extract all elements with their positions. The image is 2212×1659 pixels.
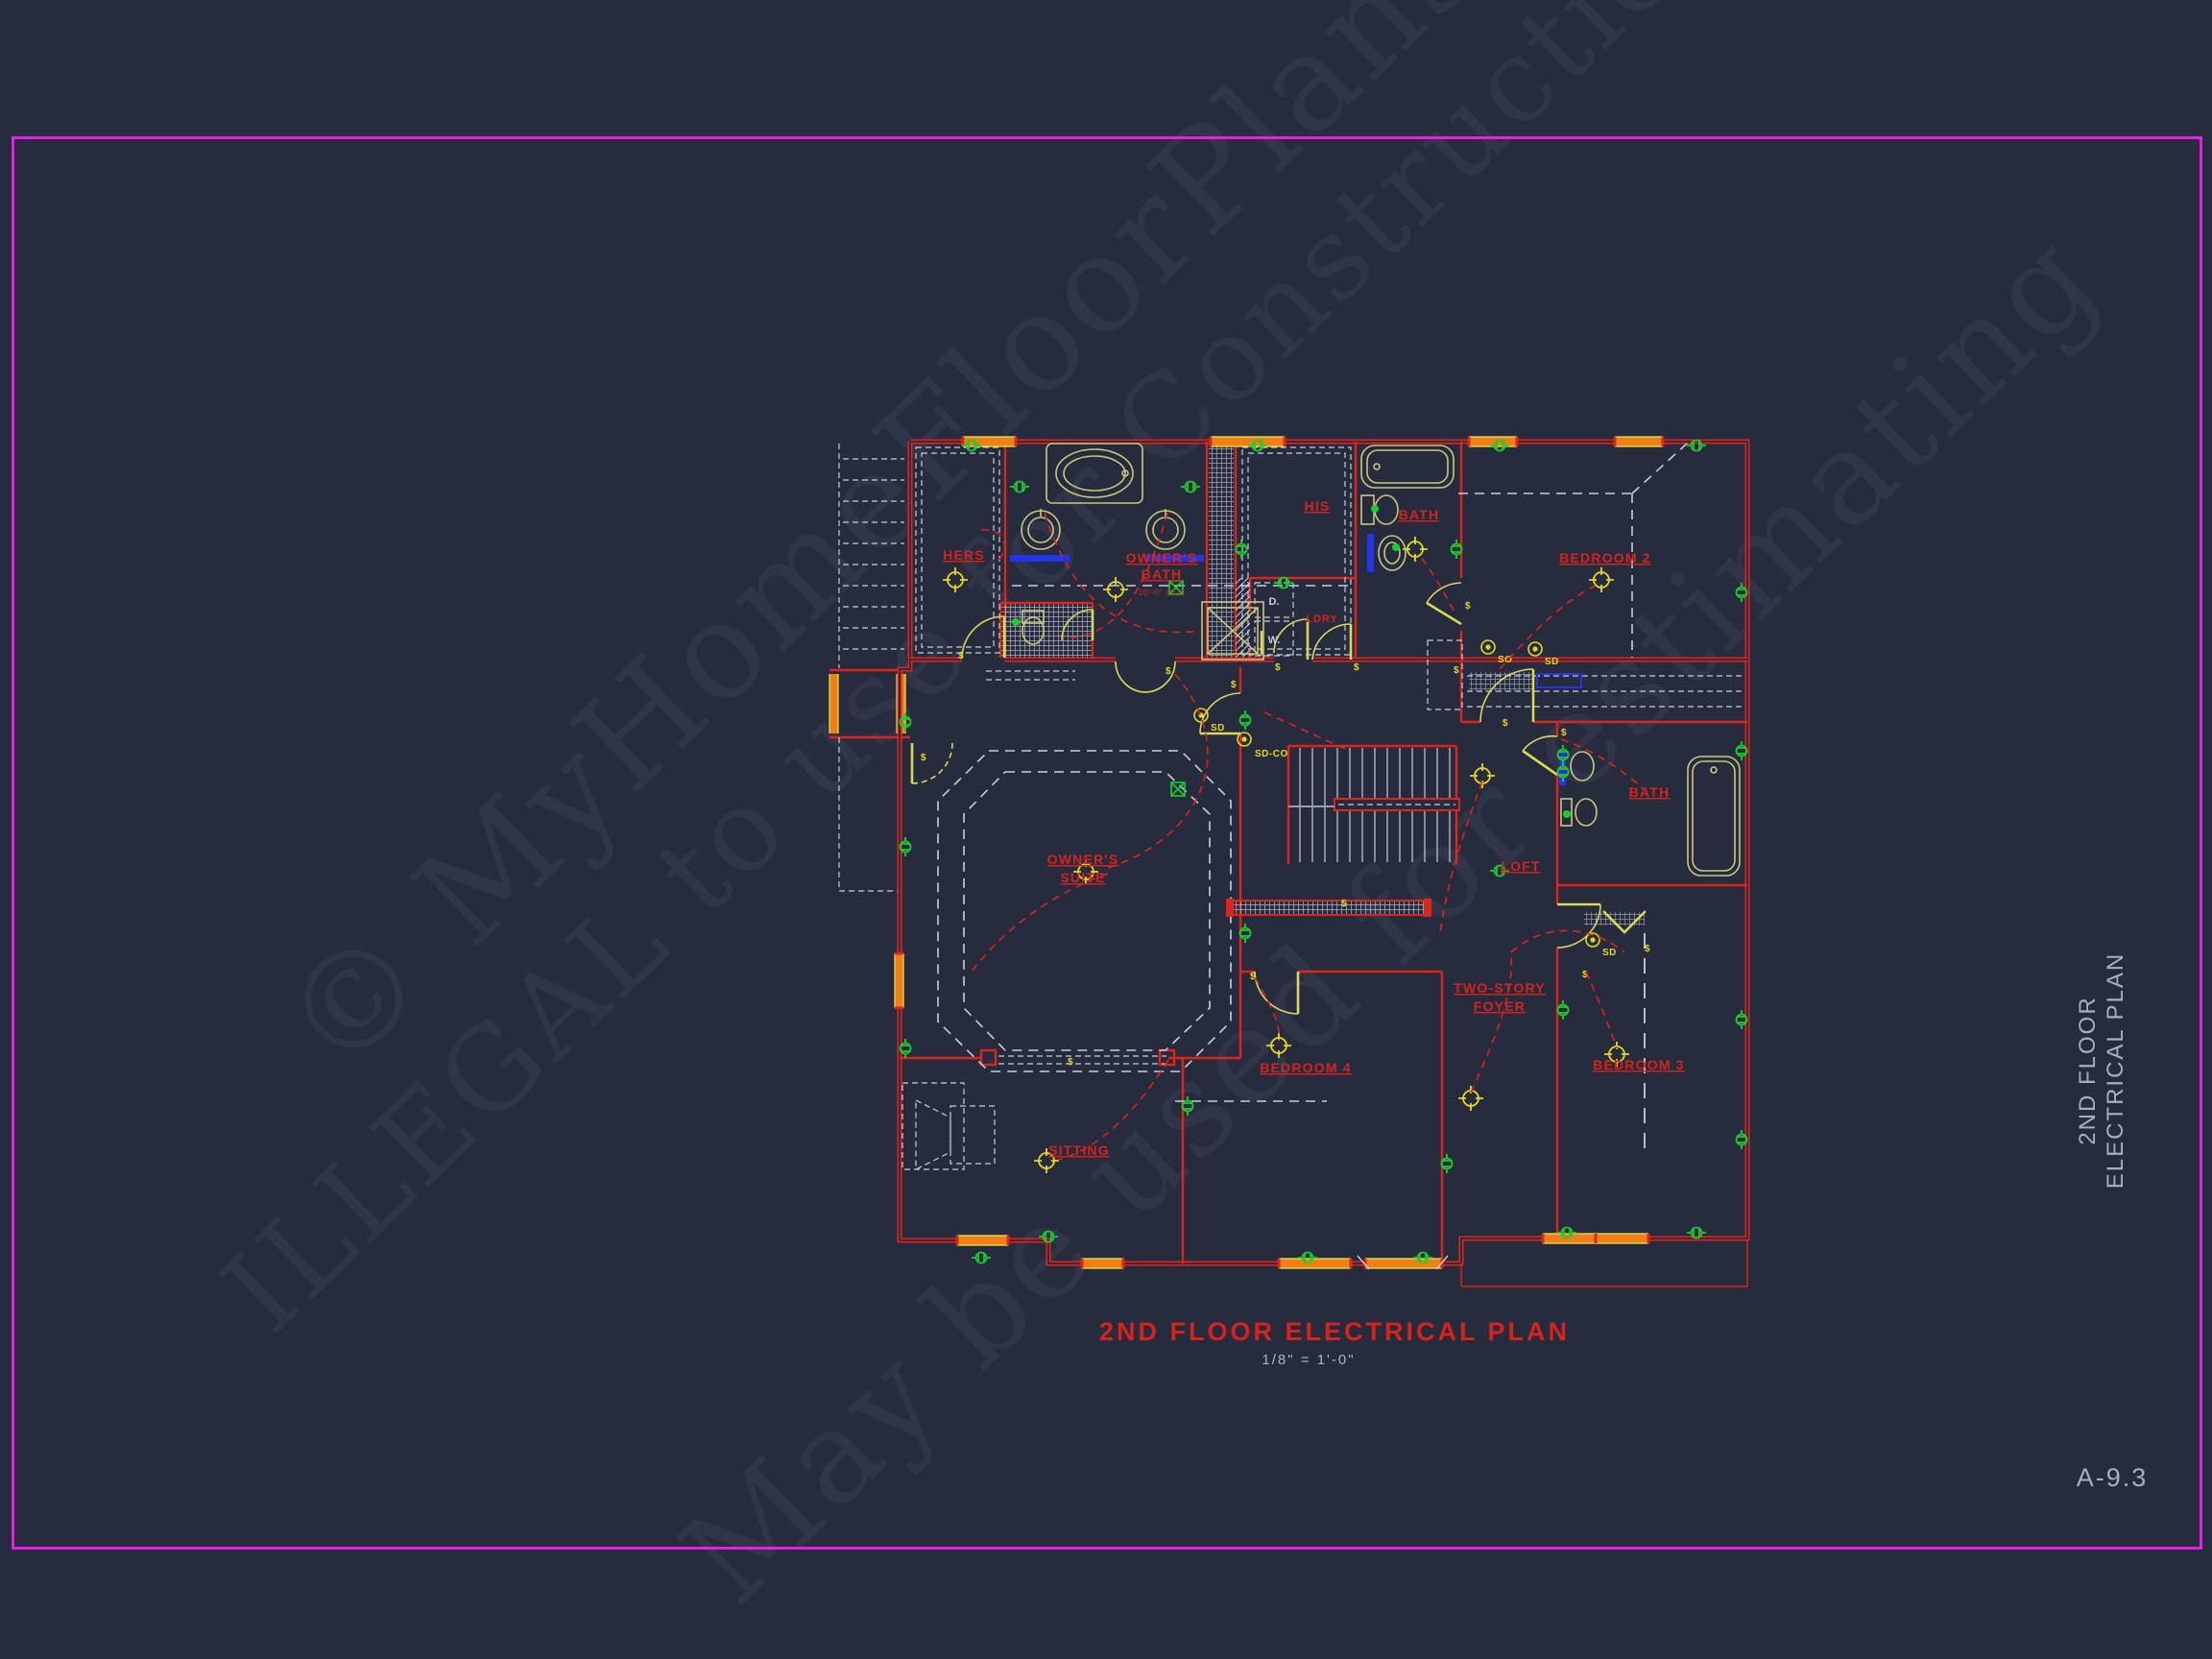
drawing-scale: 1/8" = 1'-0" — [989, 1352, 1628, 1368]
room-label-laundry: LDRY — [1306, 613, 1338, 625]
room-label-bedroom2: BEDROOM 2 — [1559, 550, 1651, 565]
room-label-his: HIS — [1305, 498, 1331, 514]
label-dryer: D. — [1269, 596, 1280, 608]
room-label-foyer-1: TWO-STORY — [1454, 980, 1546, 996]
room-label-loft: LOFT — [1501, 858, 1540, 874]
svg-text:$: $ — [921, 753, 926, 763]
svg-text:$: $ — [1561, 728, 1567, 738]
windows — [895, 437, 1663, 1269]
sd-label-3: SD — [1602, 948, 1617, 958]
sd-label-1: SD — [1211, 723, 1225, 733]
room-labels: HERS OWNER'S BATH 10'-0" CLG HIS BATH BE… — [943, 498, 1685, 1158]
room-label-owners-bath-2: BATH — [1142, 566, 1183, 582]
svg-text:$: $ — [958, 651, 964, 661]
svg-text:$: $ — [1645, 944, 1650, 954]
svg-text:$: $ — [1275, 662, 1281, 673]
room-label-sitting: SITTING — [1048, 1142, 1110, 1158]
svg-text:$: $ — [1250, 972, 1256, 982]
svg-text:$: $ — [1341, 899, 1347, 909]
room-label-owners-suite-1: OWNER'S — [1047, 852, 1119, 867]
label-washer: W. — [1268, 635, 1281, 646]
svg-text:$: $ — [1503, 718, 1508, 729]
titleblock-side-text: 2ND FLOOR ELECTRICAL PLAN — [2074, 830, 2131, 1310]
svg-text:$: $ — [1354, 662, 1359, 673]
room-label-bedroom3: BEDROOM 3 — [1593, 1057, 1685, 1072]
svg-text:$: $ — [1068, 1057, 1073, 1068]
svg-text:$: $ — [1454, 665, 1459, 676]
room-note-clg: 10'-0" CLG — [1139, 588, 1186, 597]
exterior-walls — [900, 442, 1747, 1286]
drawing-title: 2ND FLOOR ELECTRICAL PLAN — [998, 1317, 1671, 1347]
room-label-owners-suite-2: SUITE — [1060, 870, 1105, 885]
svg-text:$: $ — [1166, 666, 1171, 677]
roof-strip — [829, 444, 952, 891]
sd-co-label-1: SD-CO — [1255, 749, 1288, 759]
side-text-line1: 2ND FLOOR — [2074, 830, 2102, 1310]
sd-label-2: SD — [1545, 657, 1559, 667]
floor-plan-canvas: SD SD-CO SD SD SO $ $ $ $ $ $ $ $ $ $ $ … — [828, 434, 1768, 1298]
svg-text:$: $ — [1465, 601, 1471, 612]
side-text-line2: ELECTRICAL PLAN — [2102, 830, 2129, 1310]
sheet-background: © MyHomeFloorPlans.com ILLEGAL to use fo… — [0, 0, 2212, 1659]
stairs — [1226, 748, 1459, 917]
room-label-hers: HERS — [943, 547, 985, 563]
switches: $ $ $ $ $ $ $ $ $ $ $ $ $ $ $ — [921, 601, 1650, 1068]
room-label-bath-top: BATH — [1399, 507, 1440, 522]
room-label-foyer-2: FOYER — [1474, 998, 1526, 1014]
room-label-bath-right: BATH — [1629, 784, 1671, 800]
sheet-number: A-9.3 — [2016, 1463, 2208, 1493]
room-label-bedroom4: BEDROOM 4 — [1260, 1060, 1352, 1075]
svg-text:$: $ — [1231, 680, 1237, 690]
room-label-owners-bath-1: OWNER'S — [1126, 550, 1198, 565]
